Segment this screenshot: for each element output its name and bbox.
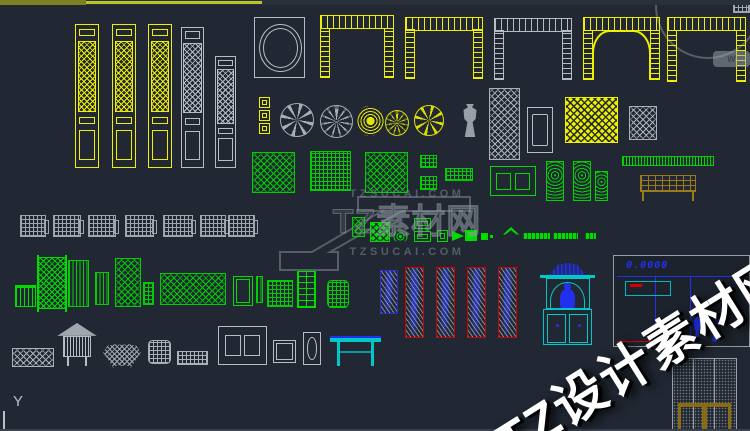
table-brown-tb-top bbox=[640, 175, 696, 192]
entity-screen-red-2[interactable] bbox=[436, 267, 455, 338]
archway-1-f-t bbox=[320, 15, 394, 29]
entity-panel-sq-3[interactable] bbox=[365, 152, 408, 193]
entity-orn-hui-2[interactable] bbox=[414, 231, 431, 242]
archway-2-f-l bbox=[405, 29, 415, 79]
entity-rosette-1[interactable] bbox=[280, 103, 314, 137]
entity-screen-red-3[interactable] bbox=[467, 267, 486, 338]
entity-panel-fishscale[interactable] bbox=[160, 273, 226, 305]
entity-lattice-strip[interactable] bbox=[489, 88, 520, 160]
entity-panel-oval[interactable] bbox=[303, 332, 321, 365]
shrine-s-bud bbox=[560, 289, 574, 309]
entity-medallion-1[interactable] bbox=[320, 105, 353, 138]
entity-table-cyan[interactable] bbox=[330, 333, 381, 366]
door-1-d3 bbox=[79, 117, 96, 125]
entity-orn-bar-2[interactable] bbox=[553, 233, 568, 239]
door-3-d4 bbox=[152, 130, 168, 160]
entity-orn-bar-4[interactable] bbox=[585, 233, 596, 239]
entity-strip-v[interactable] bbox=[256, 276, 263, 303]
entity-orn-sq-1[interactable] bbox=[465, 230, 477, 241]
door-5-d3 bbox=[218, 128, 232, 134]
entity-pavilion[interactable] bbox=[60, 323, 94, 366]
entity-orn-sq-2[interactable] bbox=[481, 233, 488, 240]
archway-4-f-r bbox=[650, 30, 660, 80]
archway-1-f-l bbox=[320, 28, 330, 78]
pavilion-pv-body bbox=[63, 336, 92, 358]
entity-fence-panel[interactable] bbox=[38, 257, 66, 309]
door-1-d1 bbox=[79, 29, 96, 37]
door-2-d2 bbox=[115, 41, 134, 112]
entity-panel-v-3[interactable] bbox=[595, 171, 608, 201]
entity-moon-gate[interactable] bbox=[254, 17, 305, 78]
archway-2-f-r bbox=[473, 29, 483, 79]
elevation-drawing-tx-dim: 0.0000 bbox=[626, 260, 668, 271]
door-2-d4 bbox=[116, 130, 132, 160]
entity-mini-panel-3[interactable] bbox=[445, 168, 473, 181]
entity-window-lattice[interactable] bbox=[629, 106, 657, 140]
entity-frame-big[interactable] bbox=[218, 326, 267, 365]
entity-archway-3[interactable] bbox=[494, 18, 572, 80]
entity-window-3[interactable] bbox=[88, 215, 116, 237]
table-cyan-tc-bar bbox=[337, 351, 375, 353]
archway-2-f-t bbox=[405, 17, 483, 31]
entity-panel-sq-2[interactable] bbox=[310, 151, 351, 191]
door-4-d2 bbox=[183, 43, 201, 113]
entity-flower-1[interactable] bbox=[357, 106, 384, 136]
entity-panel-rounded[interactable] bbox=[148, 340, 171, 364]
door-2-d1 bbox=[116, 29, 133, 37]
entity-orn-lattice[interactable] bbox=[352, 217, 365, 237]
archway-4-f-arch bbox=[592, 30, 651, 80]
entity-door-1[interactable] bbox=[75, 24, 99, 168]
entity-screen-blue[interactable] bbox=[380, 270, 398, 314]
door-3-d1 bbox=[152, 29, 169, 37]
entity-orn-bar-1[interactable] bbox=[523, 233, 550, 239]
entity-frame-h[interactable] bbox=[490, 166, 536, 196]
entity-window-6[interactable] bbox=[200, 215, 226, 237]
door-3-d3 bbox=[152, 117, 169, 125]
archway-5-f-t bbox=[667, 17, 746, 31]
pavilion-pv-roof bbox=[57, 323, 96, 336]
entity-panel-narrow-1[interactable] bbox=[95, 272, 109, 305]
entity-rail[interactable] bbox=[12, 348, 54, 367]
top-edge-yellow-segment bbox=[86, 1, 262, 4]
entity-tile-3[interactable] bbox=[259, 123, 270, 134]
entity-frieze[interactable] bbox=[622, 156, 714, 166]
entity-archway-1[interactable] bbox=[320, 15, 394, 78]
archway-4-f-t bbox=[583, 17, 660, 31]
door-5-d2 bbox=[217, 69, 233, 124]
canvas-top-edge bbox=[0, 0, 750, 5]
entity-frame-sq[interactable] bbox=[233, 276, 253, 306]
entity-window-2[interactable] bbox=[53, 215, 81, 237]
door-1-d4 bbox=[79, 130, 95, 160]
entity-door-4[interactable] bbox=[181, 27, 204, 168]
pavilion-pv-l2 bbox=[85, 357, 87, 366]
drawing-canvas[interactable]: TZSUCAI.COM TZ素材网 TZSUCAI.COM W TZ设计素材网 … bbox=[0, 0, 750, 431]
watermark-badge: W bbox=[713, 51, 750, 67]
door-3-d2 bbox=[151, 41, 170, 112]
entity-tile-1[interactable] bbox=[259, 97, 270, 108]
shrine-s-d2 bbox=[569, 314, 588, 343]
ucs-y-axis-label: Y bbox=[13, 393, 23, 410]
entity-panel-tall[interactable] bbox=[115, 258, 141, 307]
door-4-d3 bbox=[185, 118, 201, 126]
entity-window-5[interactable] bbox=[163, 215, 193, 237]
door-4-d1 bbox=[185, 31, 201, 39]
entity-window-7[interactable] bbox=[228, 215, 255, 237]
entity-screen-red-1[interactable] bbox=[405, 267, 424, 338]
entity-orn-bar-3[interactable] bbox=[568, 233, 578, 239]
entity-orn-dot[interactable] bbox=[490, 235, 493, 238]
entity-panel-maze[interactable] bbox=[297, 271, 316, 308]
panel-textured-tp-tab bbox=[678, 403, 731, 430]
entity-medallion-2[interactable] bbox=[385, 110, 409, 136]
archway-3-f-r bbox=[562, 30, 572, 80]
entity-panel-slat[interactable] bbox=[68, 260, 89, 307]
pavilion-pv-l1 bbox=[67, 357, 69, 366]
table-brown-tb-legs bbox=[642, 192, 695, 201]
entity-door-2[interactable] bbox=[112, 24, 136, 168]
archway-3-f-l bbox=[494, 30, 504, 80]
door-5-d4 bbox=[218, 138, 232, 161]
entity-orn-blob[interactable] bbox=[393, 231, 408, 242]
entity-panel-sq-1[interactable] bbox=[252, 152, 295, 193]
entity-panel-v-2[interactable] bbox=[573, 161, 591, 201]
archway-3-f-t bbox=[494, 18, 572, 32]
entity-carved-rect[interactable] bbox=[177, 351, 208, 365]
entity-panel-sq-4[interactable] bbox=[273, 340, 296, 363]
shrine-s-roof bbox=[541, 263, 594, 276]
door-5-d1 bbox=[218, 60, 232, 66]
table-cyan-tc-l2 bbox=[371, 342, 375, 366]
entity-panel-v-1[interactable] bbox=[546, 161, 564, 201]
archway-1-f-r bbox=[384, 28, 394, 78]
entity-archway-4[interactable] bbox=[583, 17, 660, 80]
entity-screen-red-4[interactable] bbox=[498, 267, 517, 338]
entity-mini-panel-1[interactable] bbox=[420, 155, 437, 168]
entity-window-1[interactable] bbox=[20, 215, 46, 237]
entity-tile-2[interactable] bbox=[259, 110, 270, 121]
entity-archway-2[interactable] bbox=[405, 17, 483, 79]
top-edge-olive-segment bbox=[0, 0, 86, 5]
entity-door-3[interactable] bbox=[148, 24, 172, 168]
door-4-d4 bbox=[185, 131, 201, 160]
entity-shrine[interactable] bbox=[540, 262, 595, 345]
entity-panel-block[interactable] bbox=[267, 280, 293, 307]
entity-panel-octagon[interactable] bbox=[327, 280, 349, 308]
elevation-drawing-tx-red bbox=[630, 284, 642, 288]
entity-table-brown[interactable] bbox=[640, 175, 696, 201]
entity-stool[interactable] bbox=[15, 285, 36, 307]
ucs-y-axis-line bbox=[3, 411, 5, 431]
entity-panel-narrow-2[interactable] bbox=[143, 282, 154, 305]
archway-5-f-l bbox=[667, 30, 677, 82]
entity-window-4[interactable] bbox=[125, 215, 154, 237]
entity-door-5[interactable] bbox=[215, 56, 236, 168]
shrine-s-d1 bbox=[547, 314, 566, 343]
entity-rosette-2[interactable] bbox=[414, 105, 444, 136]
entity-orn-hui-3[interactable] bbox=[437, 230, 448, 242]
entity-orn-square[interactable] bbox=[370, 222, 390, 242]
entity-mini-panel-2[interactable] bbox=[420, 176, 437, 190]
door-2-d3 bbox=[116, 117, 133, 125]
entity-orn-hui-1[interactable] bbox=[414, 218, 431, 229]
entity-archway-5[interactable] bbox=[667, 17, 746, 82]
entity-fu-panel[interactable] bbox=[565, 97, 618, 143]
table-cyan-tc-l1 bbox=[337, 342, 341, 366]
entity-frame-small[interactable] bbox=[527, 107, 553, 153]
door-1-d2 bbox=[78, 41, 97, 112]
